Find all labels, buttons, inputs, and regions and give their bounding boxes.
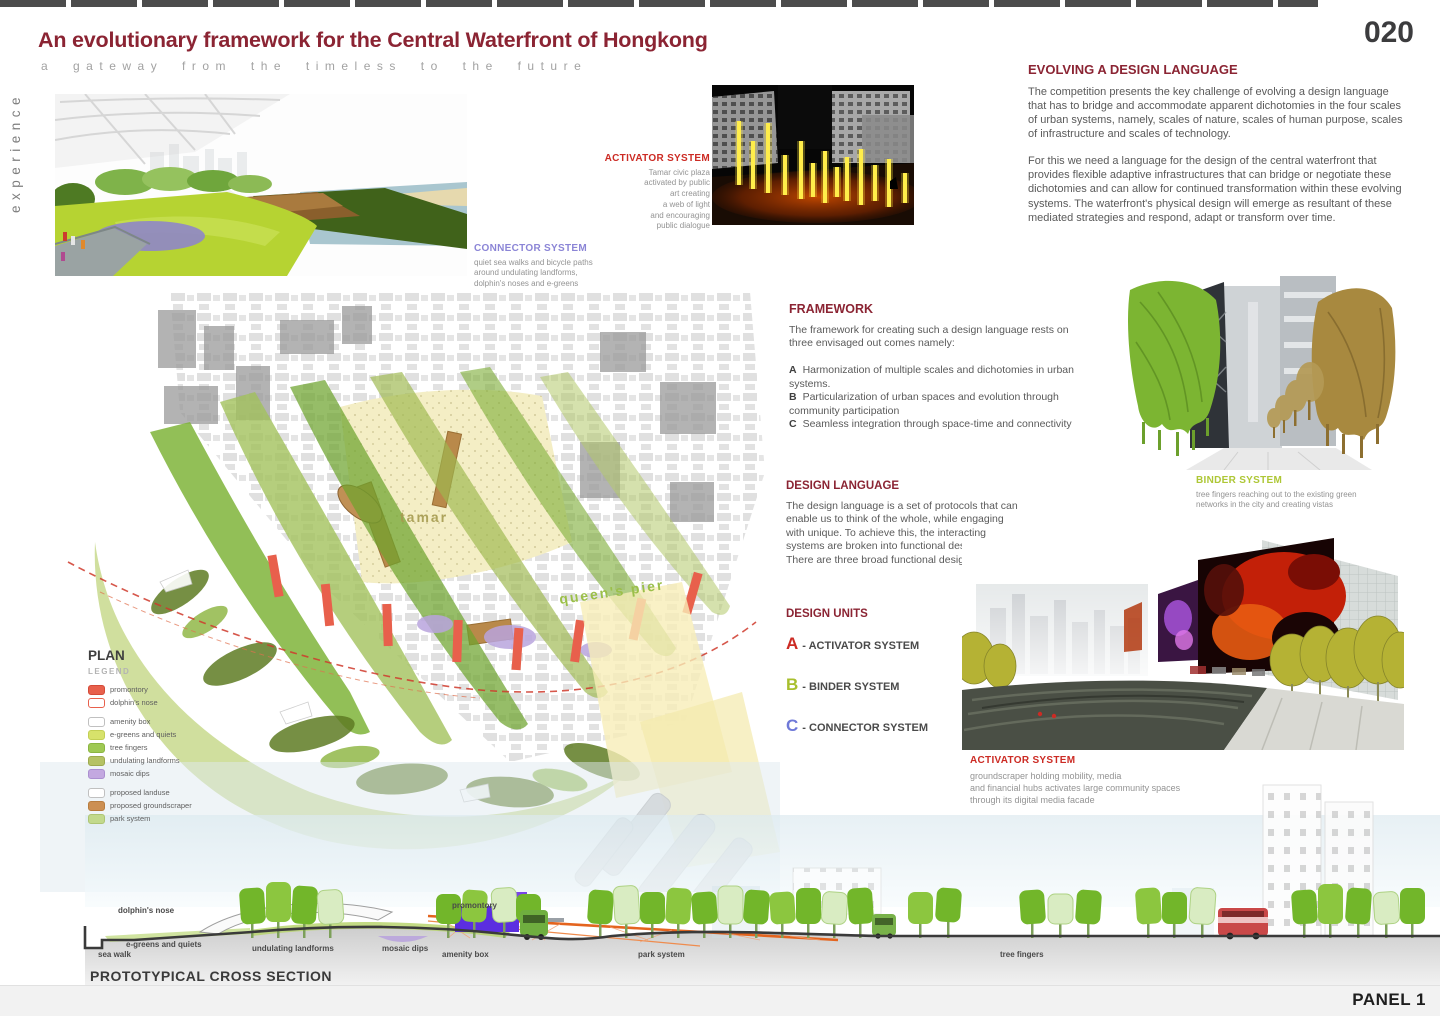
page-title: An evolutionary framework for the Centra… [38, 28, 708, 53]
cross-section-heading: PROTOTYPICAL CROSS SECTION [90, 968, 332, 984]
legend-swatch [88, 756, 105, 766]
caption-activator-top: ACTIVATOR SYSTEM Tamar civic plaza activ… [560, 152, 710, 232]
legend-item: amenity box [88, 715, 263, 728]
caption-heading: ACTIVATOR SYSTEM [970, 754, 1260, 768]
legend-item: undulating landforms [88, 754, 263, 767]
section-evolving: EVOLVING A DESIGN LANGUAGE The competiti… [1028, 62, 1406, 238]
legend-item: e-greens and quiets [88, 728, 263, 741]
legend-item: mosaic dips [88, 767, 263, 780]
paragraph: The framework for creating such a design… [789, 324, 1081, 351]
caption-binder: BINDER SYSTEM tree fingers reaching out … [1196, 474, 1411, 511]
legend-label: undulating landforms [110, 756, 180, 765]
legend-swatch [88, 801, 105, 811]
caption-heading: ACTIVATOR SYSTEM [560, 152, 710, 166]
legend-label: mosaic dips [110, 769, 150, 778]
paragraph: The competition presents the key challen… [1028, 85, 1406, 141]
legend-swatch [88, 814, 105, 824]
page-subtitle: a gateway from the timeless to the futur… [41, 59, 587, 73]
waterfront-render-svg [55, 94, 467, 276]
legend-item: park system [88, 812, 263, 825]
legend-item: dolphin's nose [88, 696, 263, 709]
legend-item: promontory [88, 683, 263, 696]
legend-item: proposed groundscraper [88, 799, 263, 812]
legend-heading: LEGEND [88, 667, 263, 676]
legend-label: e-greens and quiets [110, 730, 176, 739]
legend-label: promontory [110, 685, 148, 694]
footer-bar: PANEL 1 [0, 985, 1440, 1016]
framework-item-a: AHarmonization of multiple scales and di… [789, 364, 1081, 391]
legend-swatch [88, 698, 105, 708]
section-heading: EVOLVING A DESIGN LANGUAGE [1028, 62, 1406, 77]
waterfront-render-image [55, 94, 467, 276]
panel-number-label: PANEL 1 [1352, 990, 1426, 1010]
section-label-amenity-box: amenity box [442, 950, 489, 959]
panel-thumbnail-strip [0, 0, 1318, 7]
legend-label: amenity box [110, 717, 150, 726]
paragraph: For this we need a language for the desi… [1028, 154, 1406, 224]
legend-swatch [88, 717, 105, 727]
legend-label: park system [110, 814, 150, 823]
section-heading: DESIGN LANGUAGE [786, 480, 1022, 492]
framework-item-c: CSeamless integration through space-time… [789, 418, 1081, 432]
caption-heading: CONNECTOR SYSTEM [474, 242, 654, 256]
binder-system-svg [1128, 272, 1396, 470]
legend-label: dolphin's nose [110, 698, 158, 707]
night-plaza-svg [712, 85, 914, 225]
binder-system-image [1128, 272, 1396, 470]
framework-item-b: BParticularization of urban spaces and e… [789, 391, 1081, 418]
legend-item: tree fingers [88, 741, 263, 754]
presentation-panel: An evolutionary framework for the Centra… [0, 0, 1440, 1016]
section-label-tree-fingers: tree fingers [1000, 950, 1044, 959]
section-label-promontory: promontory [452, 901, 497, 910]
section-label-e-greens: e-greens and quiets [126, 940, 202, 949]
section-label-park-system: park system [638, 950, 685, 959]
side-label-experience: experience [8, 92, 23, 213]
plan-title: PLAN [88, 648, 263, 663]
plan-legend: PLAN LEGEND promontory dolphin's nose am… [88, 648, 263, 825]
legend-swatch [88, 788, 105, 798]
map-label-tamar: tamar [400, 509, 448, 525]
legend-item: proposed landuse [88, 786, 263, 799]
legend-swatch [88, 769, 105, 779]
legend-swatch [88, 743, 105, 753]
legend-swatch [88, 685, 105, 695]
page-number: 020 [1364, 16, 1414, 50]
legend-swatch [88, 730, 105, 740]
activator-system-svg [962, 538, 1404, 750]
section-framework: FRAMEWORK The framework for creating suc… [789, 302, 1081, 432]
caption-connector: CONNECTOR SYSTEM quiet sea walks and bic… [474, 242, 654, 290]
red-bus [1218, 908, 1268, 939]
section-heading: FRAMEWORK [789, 302, 1081, 316]
night-plaza-render-image [712, 85, 914, 225]
section-label-mosaic-dips: mosaic dips [382, 944, 428, 953]
caption-heading: BINDER SYSTEM [1196, 474, 1411, 488]
section-label-dolphins-nose: dolphin's nose [118, 906, 174, 915]
section-label-undulating-landforms: undulating landforms [252, 944, 334, 953]
section-label-sea-walk: sea walk [98, 950, 131, 959]
legend-label: proposed landuse [110, 788, 170, 797]
legend-label: tree fingers [110, 743, 148, 752]
legend-label: proposed groundscraper [110, 801, 192, 810]
activator-system-image [962, 538, 1404, 750]
